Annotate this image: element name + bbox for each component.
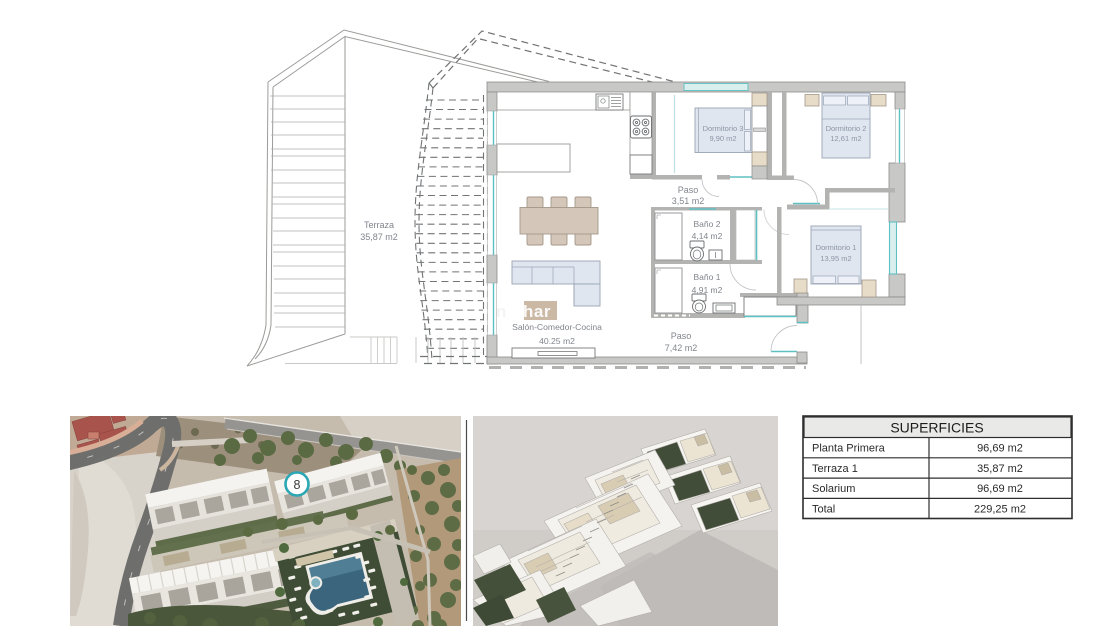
svg-text:har: har	[523, 302, 551, 321]
svg-text:Terraza 1: Terraza 1	[812, 463, 858, 475]
svg-text:Baño 2: Baño 2	[694, 219, 721, 229]
svg-text:4,14 m2: 4,14 m2	[692, 231, 723, 241]
svg-text:Total: Total	[812, 503, 835, 515]
svg-text:Paso: Paso	[678, 185, 699, 195]
svg-text:n: n	[496, 302, 506, 321]
svg-text:229,25 m2: 229,25 m2	[974, 503, 1026, 515]
svg-text:Planta Primera: Planta Primera	[812, 443, 886, 455]
svg-text:SUPERFICIES: SUPERFICIES	[890, 420, 983, 436]
svg-text:96,69 m2: 96,69 m2	[977, 443, 1023, 455]
svg-text:Paso: Paso	[671, 331, 692, 341]
svg-text:35,87 m2: 35,87 m2	[977, 463, 1023, 475]
svg-text:13,95 m2: 13,95 m2	[820, 254, 851, 263]
svg-text:Salón-Comedor-Cocina: Salón-Comedor-Cocina	[512, 322, 602, 332]
svg-text:35,87 m2: 35,87 m2	[360, 232, 398, 242]
svg-text:Solarium: Solarium	[812, 483, 855, 495]
svg-text:12,61 m2: 12,61 m2	[830, 134, 861, 143]
svg-text:Terraza: Terraza	[364, 220, 394, 230]
svg-text:9,90 m2: 9,90 m2	[709, 134, 736, 143]
svg-text:8: 8	[294, 478, 301, 492]
svg-text:Dormitorio 1: Dormitorio 1	[816, 243, 857, 252]
svg-text:Baño 1: Baño 1	[694, 272, 721, 282]
svg-text:Dormitorio 3: Dormitorio 3	[703, 124, 744, 133]
svg-text:4,91 m2: 4,91 m2	[692, 285, 723, 295]
svg-text:Dormitorio 2: Dormitorio 2	[826, 124, 867, 133]
svg-text:7,42 m2: 7,42 m2	[665, 343, 698, 353]
svg-text:40.25 m2: 40.25 m2	[539, 336, 575, 346]
svg-text:3,51 m2: 3,51 m2	[672, 196, 705, 206]
svg-text:96,69 m2: 96,69 m2	[977, 483, 1023, 495]
